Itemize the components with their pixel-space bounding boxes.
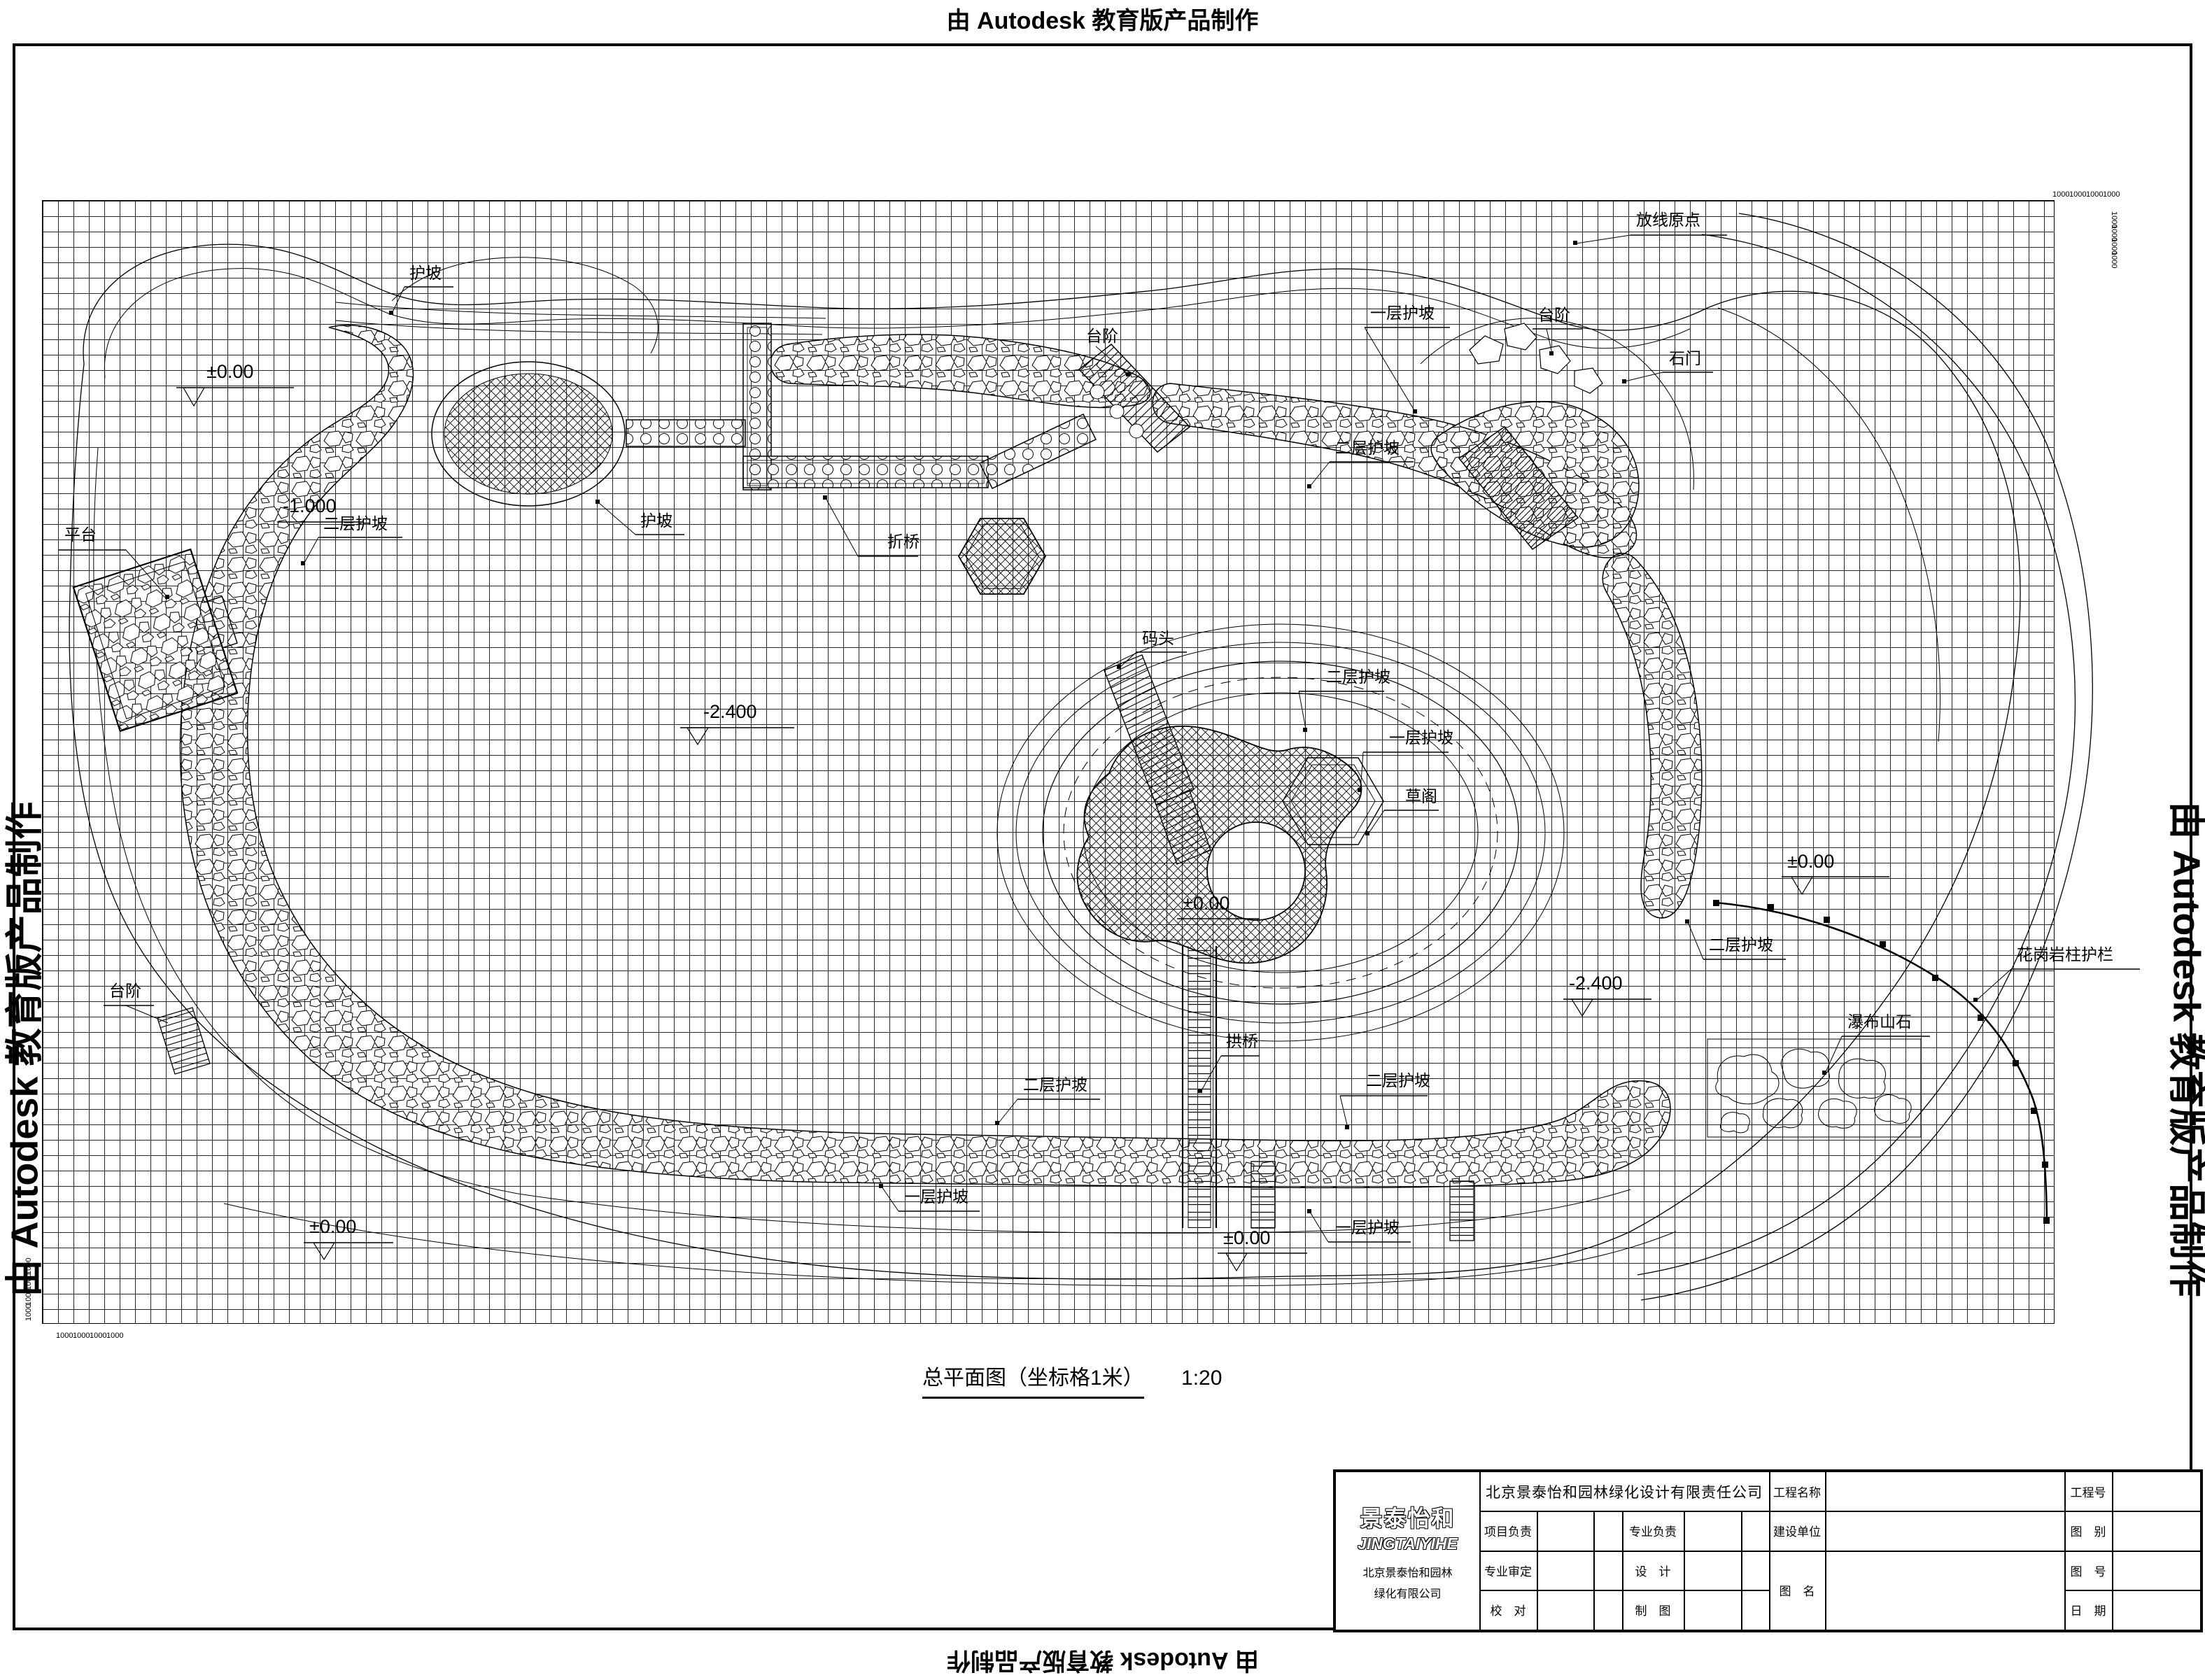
svg-text:一层护坡: 一层护坡	[904, 1187, 968, 1206]
svg-text:台阶: 台阶	[1538, 306, 1570, 324]
svg-text:石门: 石门	[1669, 349, 1701, 367]
logo-address-line2: 绿化有限公司	[1374, 1584, 1441, 1601]
rock-band-right	[1602, 553, 1702, 918]
svg-text:1000: 1000	[56, 1332, 73, 1340]
svg-text:折桥: 折桥	[887, 532, 920, 551]
drawing-caption: 总平面图（坐标格1米） 1:20	[922, 1360, 1222, 1399]
drawing-sheet: 由 Autodesk 教育版产品制作 由 Autodesk 教育版产品制作 由 …	[0, 0, 2205, 1680]
svg-text:草阁: 草阁	[1405, 787, 1437, 805]
svg-text:1000: 1000	[24, 1304, 33, 1321]
svg-text:-2.400: -2.400	[1569, 973, 1623, 994]
svg-text:1000: 1000	[2086, 190, 2103, 199]
elev-neg2400-center: -2.400	[680, 701, 794, 744]
svg-text:二层护坡: 二层护坡	[1023, 1075, 1087, 1094]
label-slope2-island: 二层护坡	[1299, 668, 1390, 732]
svg-text:1000: 1000	[2110, 251, 2118, 268]
elev-zero-right: ±0.00	[1782, 851, 1889, 894]
label-slope1-bottomcenter: 一层护坡	[1307, 1209, 1411, 1242]
logo-chinese: 景泰怡和	[1360, 1501, 1455, 1533]
field-discipline-lead: 专业负责	[1622, 1511, 1684, 1551]
pond	[432, 362, 625, 506]
field-check: 校 对	[1479, 1590, 1537, 1630]
caption-title: 总平面图（坐标格1米）	[922, 1360, 1144, 1399]
field-drawing-name: 图 名	[1769, 1551, 1825, 1630]
svg-text:二层护坡: 二层护坡	[1709, 936, 1773, 954]
label-slope-topleft: 护坡	[389, 264, 453, 315]
svg-text:拱桥: 拱桥	[1226, 1032, 1258, 1050]
caption-scale: 1:20	[1181, 1367, 1222, 1390]
company-name: 北京景泰怡和园林绿化设计有限责任公司	[1479, 1472, 1769, 1511]
island	[997, 624, 1564, 1041]
svg-text:花岗岩柱护栏: 花岗岩柱护栏	[2017, 945, 2113, 963]
svg-text:±0.00: ±0.00	[206, 361, 253, 382]
svg-text:二层护坡: 二层护坡	[1326, 668, 1390, 686]
svg-text:1000: 1000	[73, 1332, 90, 1340]
title-block-line	[1593, 1511, 1595, 1630]
svg-text:-2.400: -2.400	[703, 701, 757, 722]
logo-english: JINGTAIYIHE	[1358, 1534, 1458, 1553]
title-block-line	[1537, 1511, 1538, 1630]
svg-text:码头: 码头	[1142, 629, 1174, 647]
label-zigzag-bridge: 折桥	[823, 495, 920, 556]
label-slope2-right: 二层护坡	[1685, 919, 1786, 959]
field-project-lead: 项目负责	[1479, 1511, 1537, 1551]
label-slope1-island: 一层护坡	[1358, 728, 1453, 792]
stone-gate-rockery	[1421, 318, 1694, 549]
svg-text:1000: 1000	[106, 1332, 123, 1340]
field-draft: 制 图	[1622, 1590, 1684, 1630]
elev-zero-topleft: ±0.00	[176, 361, 294, 406]
svg-text:±0.00: ±0.00	[309, 1216, 356, 1237]
svg-text:一层护坡: 一层护坡	[1335, 1218, 1400, 1236]
hexagon-pavilion	[959, 518, 1045, 594]
field-project-name: 工程名称	[1769, 1472, 1825, 1511]
svg-text:±0.00: ±0.00	[1787, 851, 1834, 872]
svg-text:1000: 1000	[90, 1332, 106, 1340]
field-review: 专业审定	[1479, 1551, 1537, 1590]
company-logo: 景泰怡和 JINGTAIYIHE 北京景泰怡和园林 绿化有限公司	[1336, 1472, 1479, 1630]
svg-text:二层护坡: 二层护坡	[1366, 1071, 1430, 1089]
svg-text:±0.00: ±0.00	[1223, 1227, 1270, 1248]
svg-text:1000: 1000	[24, 1258, 33, 1275]
title-block-line	[1741, 1511, 1742, 1630]
field-date: 日 期	[2064, 1590, 2112, 1630]
elev-zero-bottomcenter: ±0.00	[1218, 1227, 1307, 1271]
field-drawing-category: 图 别	[2064, 1511, 2112, 1551]
logo-address-line1: 北京景泰怡和园林	[1362, 1563, 1452, 1580]
title-block: 景泰怡和 JINGTAIYIHE 北京景泰怡和园林 绿化有限公司 北京景泰怡和园…	[1333, 1469, 2203, 1632]
svg-text:二层护坡: 二层护坡	[1335, 439, 1400, 457]
field-design: 设 计	[1622, 1551, 1684, 1590]
svg-text:二层护坡: 二层护坡	[323, 514, 388, 532]
title-block-line	[1684, 1511, 1685, 1630]
label-stone-gate: 石门	[1622, 349, 1713, 383]
svg-text:平台: 平台	[64, 525, 97, 544]
svg-text:护坡: 护坡	[640, 511, 672, 530]
svg-text:台阶: 台阶	[1086, 327, 1118, 345]
svg-text:1000: 1000	[24, 1289, 33, 1306]
plan-drawing: 放线原点 护坡 台阶 一层护坡 台阶 石门	[0, 0, 2205, 1680]
svg-text:1000: 1000	[2052, 190, 2069, 199]
label-slope1-bottomleft: 一层护坡	[879, 1184, 980, 1211]
svg-text:放线原点: 放线原点	[1636, 211, 1700, 229]
field-project-no: 工程号	[2064, 1472, 2112, 1511]
svg-text:一层护坡: 一层护坡	[1389, 728, 1453, 747]
field-drawing-no: 图 号	[2064, 1551, 2112, 1590]
svg-text:护坡: 护坡	[409, 264, 442, 282]
elev-neg2400-right: -2.400	[1563, 973, 1651, 1016]
svg-text:1000: 1000	[2069, 190, 2086, 199]
svg-text:1000: 1000	[2103, 190, 2120, 199]
label-granite-railing: 花岗岩柱护栏	[1973, 945, 2140, 1002]
elev-zero-bottomleft: ±0.00	[304, 1216, 393, 1259]
svg-text:1000: 1000	[24, 1273, 33, 1290]
label-slope2-bottomcenter: 二层护坡	[1340, 1071, 1430, 1129]
waterfall-rocks	[1707, 1039, 1921, 1137]
label-steps-bottomleft: 台阶	[104, 982, 168, 1023]
svg-text:-1.000: -1.000	[283, 495, 337, 516]
svg-text:瀑布山石: 瀑布山石	[1847, 1012, 1912, 1031]
label-grass-pavilion: 草阁	[1365, 787, 1439, 835]
svg-text:一层护坡: 一层护坡	[1370, 304, 1435, 322]
field-client: 建设单位	[1769, 1511, 1825, 1551]
label-slope1-topright: 一层护坡	[1365, 304, 1450, 414]
svg-text:±0.00: ±0.00	[1183, 893, 1230, 914]
label-slope2-bottomleft: 二层护坡	[995, 1075, 1100, 1125]
svg-text:台阶: 台阶	[109, 982, 141, 1000]
label-setting-out-origin: 放线原点	[1573, 211, 1727, 245]
label-slope-center: 护坡	[596, 500, 684, 535]
label-waterfall-rocks: 瀑布山石	[1822, 1012, 1930, 1075]
